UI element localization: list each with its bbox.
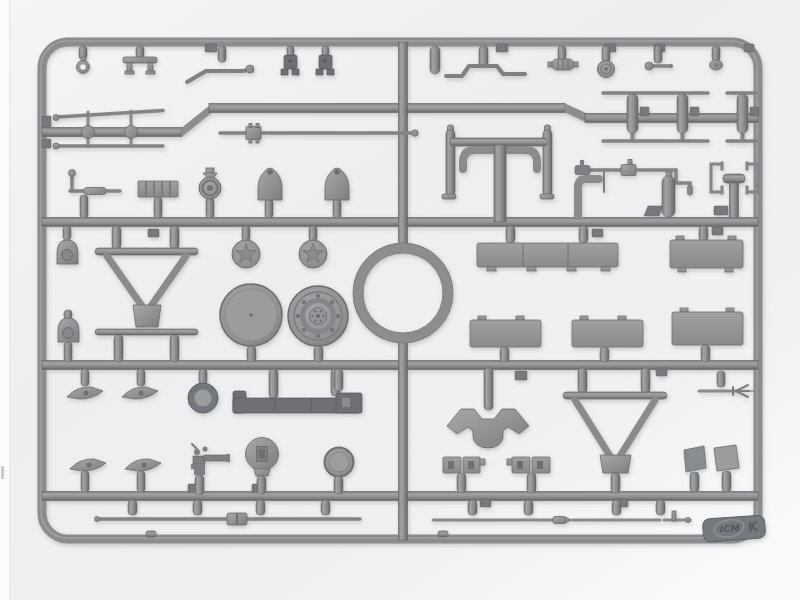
gate-stub — [334, 369, 343, 391]
icm-tab: ICM K — [702, 515, 765, 542]
photo-edge-line — [9, 0, 10, 600]
sprue-letter: K — [747, 519, 759, 535]
sprue-photo-canvas: ICM K — [0, 0, 800, 600]
part-sprue-stub — [430, 46, 440, 74]
sprue-photo: Photograph of an injection-moulded plast… — [0, 0, 800, 600]
center-runner-bottom — [399, 338, 408, 540]
icm-logo-text: ICM — [719, 522, 741, 534]
photo-edge-strip — [0, 0, 9, 600]
center-runner-top — [399, 42, 408, 248]
photo-speck — [1, 466, 4, 479]
